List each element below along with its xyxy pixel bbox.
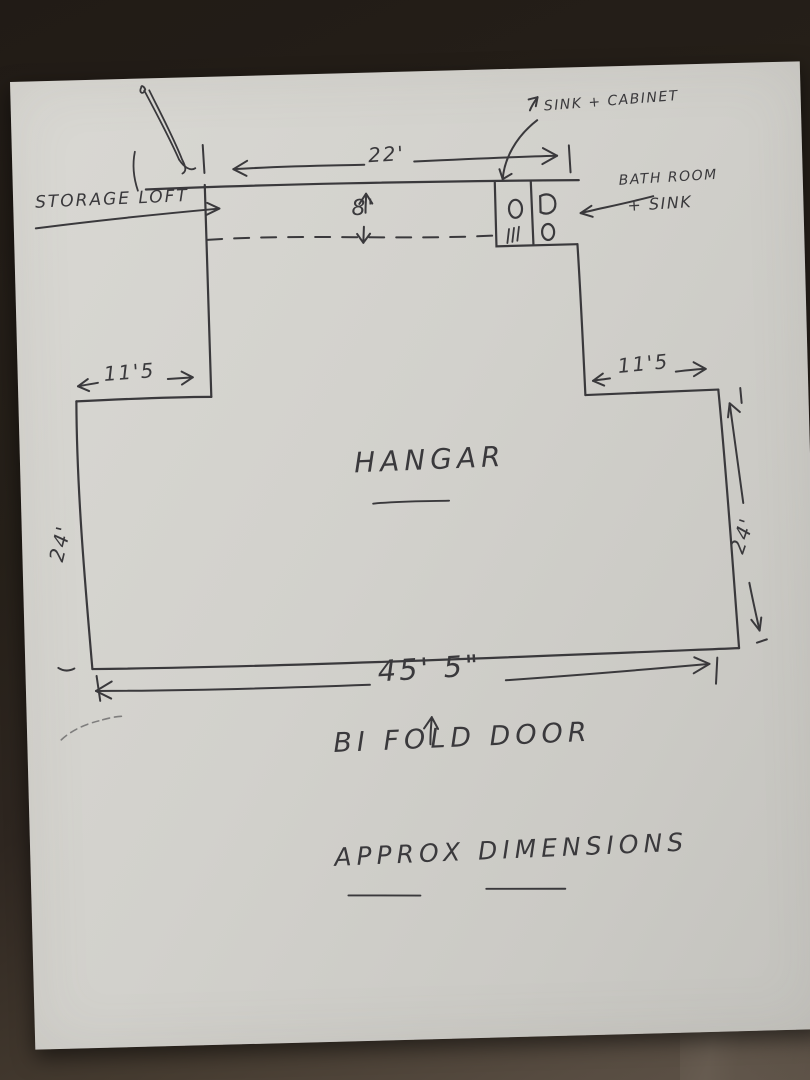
dim-24-right-arrows (727, 387, 767, 643)
dim-8-label: 8' (351, 196, 376, 220)
dim-11-5-left-label: 11'5 (103, 360, 156, 385)
storage-loft-dashed-line (207, 231, 500, 243)
sink-fixture-icon (509, 200, 522, 218)
right-step-wall (585, 390, 718, 395)
dim-22-label: 22' (367, 143, 405, 166)
hangar-underline (373, 500, 449, 503)
stairs-hatch-icon (507, 227, 519, 243)
bathroom-room (495, 180, 578, 246)
bathroom-outline (495, 180, 578, 246)
pen-scribble-bottom-left (61, 716, 124, 740)
pen-scribble-top-left (131, 85, 195, 191)
top-wall (146, 177, 579, 191)
left-outer-wall (76, 401, 92, 669)
dim-11-5-right-label: 11'5 (617, 351, 670, 377)
room-label-hangar: HANGAR (353, 442, 506, 478)
dim-45-5-label: 45' 5" (377, 650, 483, 687)
approx-underline (348, 894, 420, 898)
left-inner-wall (205, 185, 212, 397)
left-step-wall (76, 396, 211, 401)
toilet-icon (540, 194, 555, 214)
sink-cabinet-arrows (498, 97, 540, 179)
right-inner-wall (577, 244, 585, 395)
sketch-paper: STORAGE LOFT SINK + CABINET BATH ROOM + … (10, 61, 810, 1049)
hangar-walls (70, 171, 739, 670)
dimensions-underline (486, 887, 565, 891)
bathroom-divider (531, 181, 534, 244)
sink-icon (542, 224, 554, 240)
